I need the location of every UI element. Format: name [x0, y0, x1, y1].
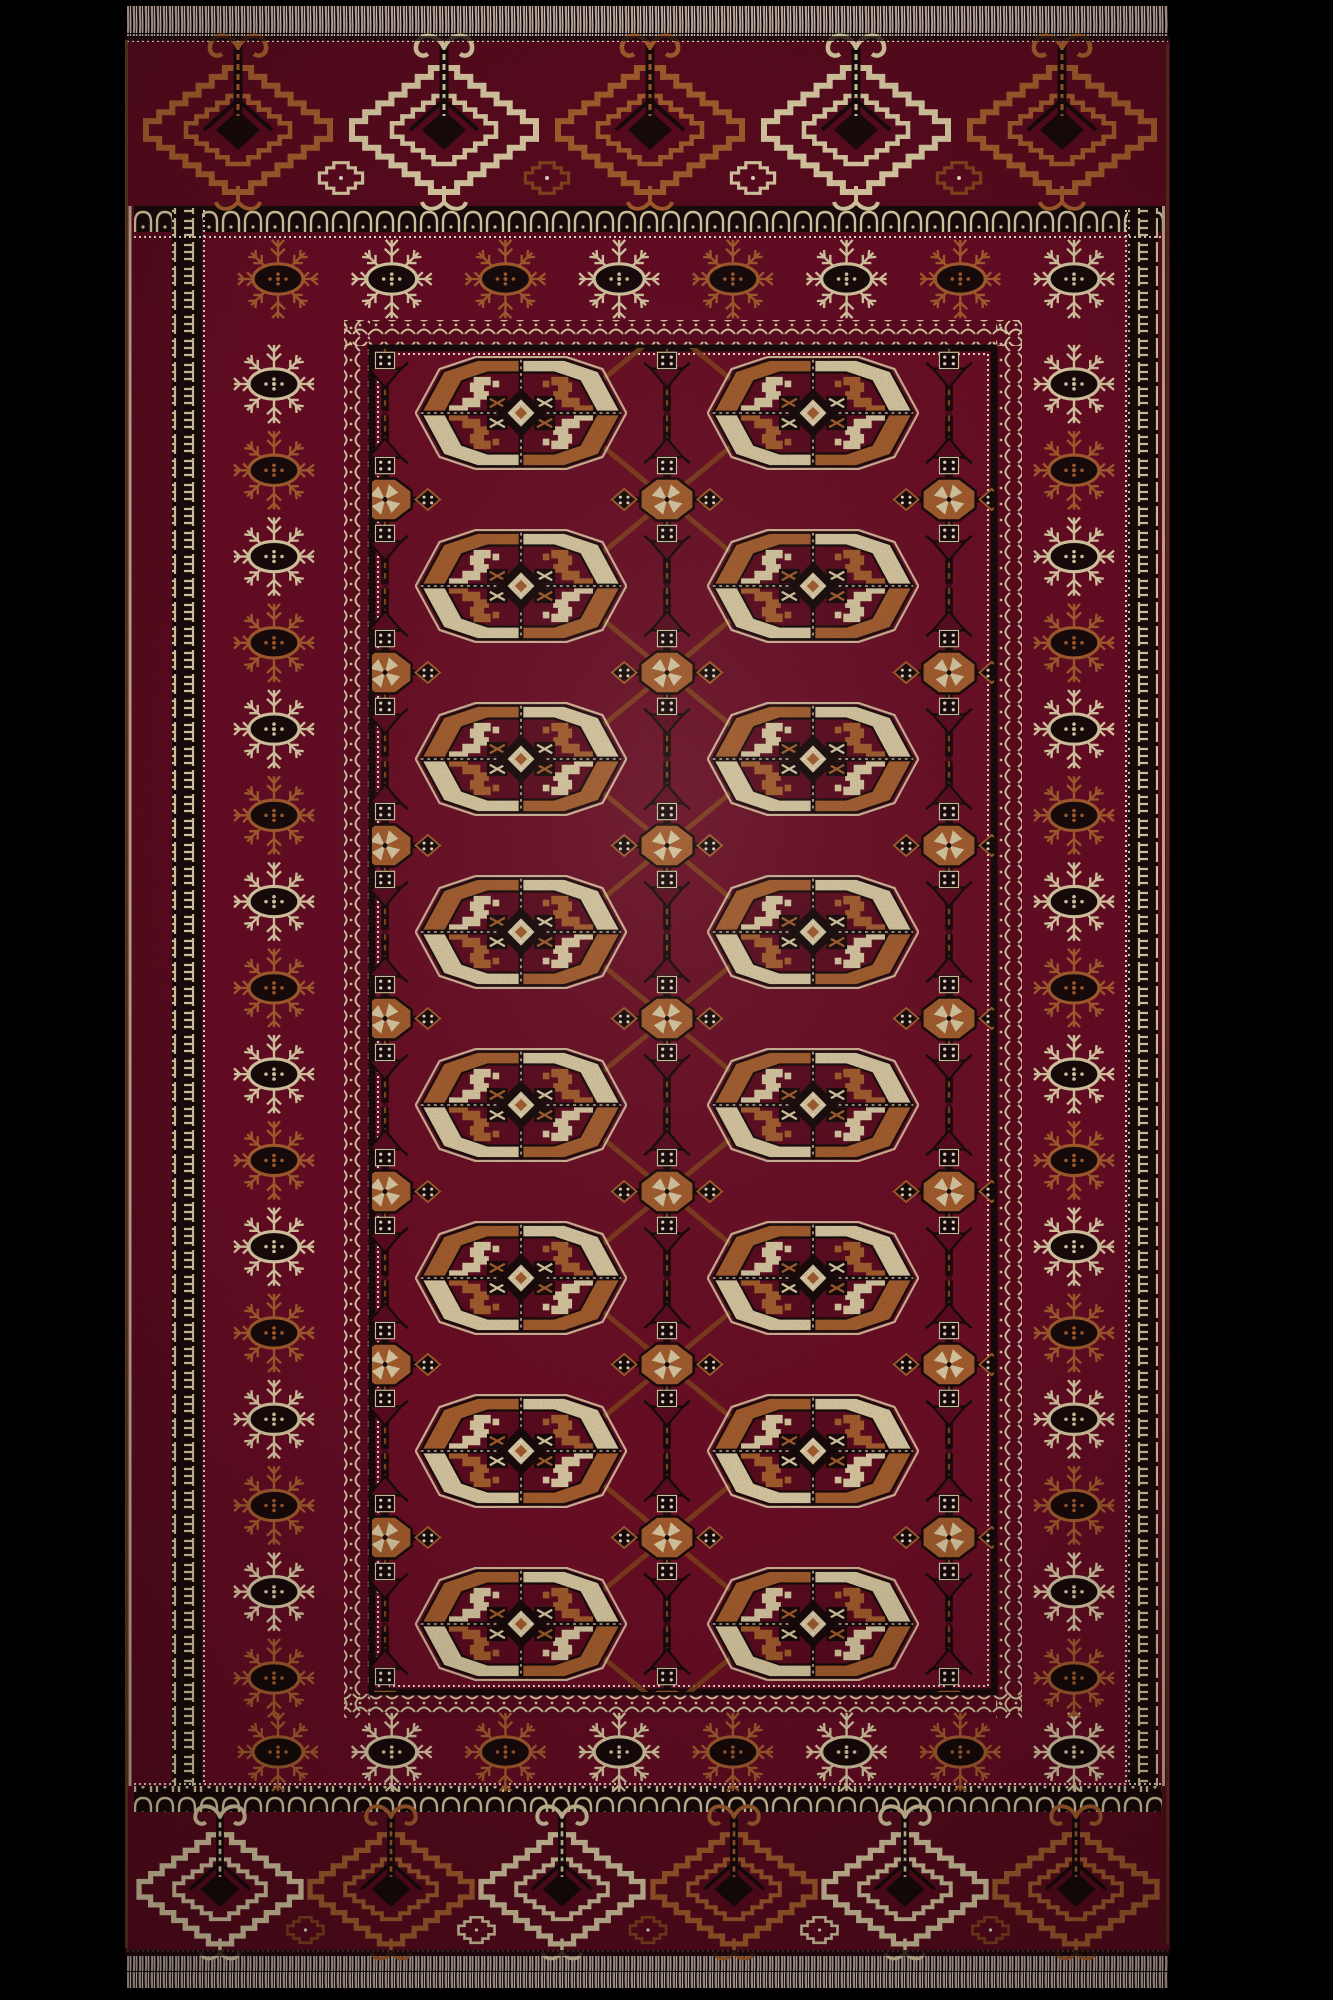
photo-canvas — [0, 0, 1333, 2000]
vignette — [0, 0, 1333, 2000]
rug-graphic — [0, 0, 1333, 2000]
